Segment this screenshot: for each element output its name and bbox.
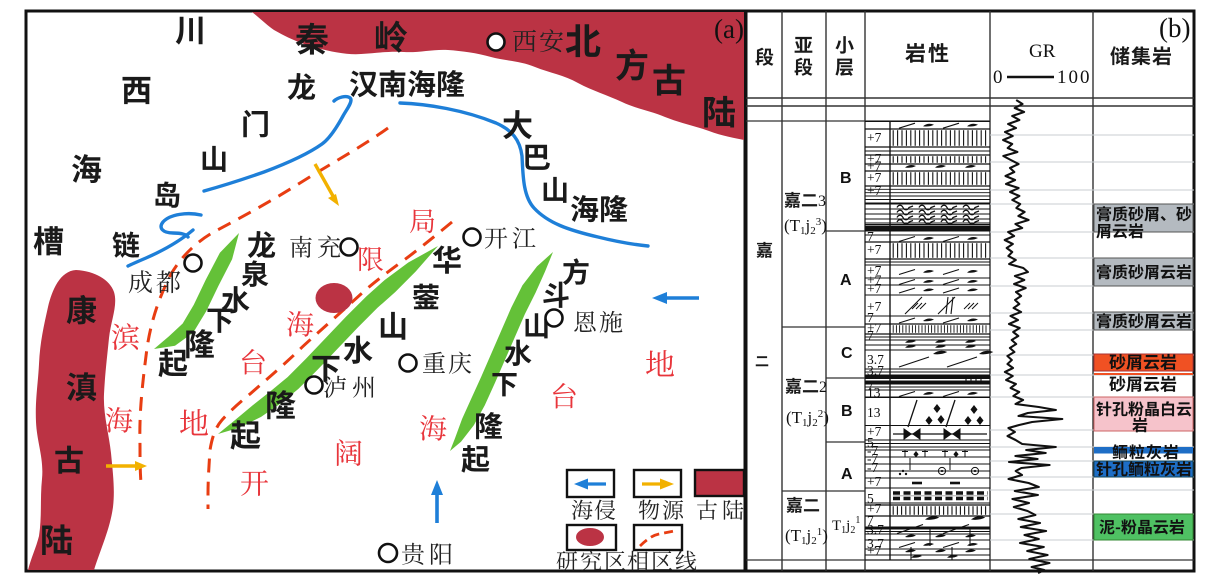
svg-text:3.7: 3.7 (867, 522, 884, 537)
svg-text:(a): (a) (714, 14, 744, 44)
svg-text:B: B (840, 170, 852, 187)
svg-text:13: 13 (867, 405, 881, 420)
svg-text:3: 3 (818, 193, 826, 210)
svg-text:(b): (b) (1159, 13, 1190, 43)
svg-text:(T1j22): (T1j22) (786, 408, 829, 429)
svg-text:2: 2 (819, 379, 827, 396)
svg-text:+7: +7 (867, 242, 882, 257)
svg-text:A: A (841, 466, 853, 483)
svg-text:(T1j23): (T1j23) (784, 216, 827, 237)
svg-text:7: 7 (867, 328, 874, 343)
svg-text:+7: +7 (867, 183, 882, 198)
svg-text:A: A (840, 272, 852, 289)
svg-text:100: 100 (1057, 67, 1092, 88)
svg-text:0: 0 (993, 67, 1003, 88)
svg-text:3.7: 3.7 (867, 363, 884, 378)
svg-text:B: B (841, 403, 853, 420)
svg-text:+7: +7 (867, 281, 882, 296)
svg-text:GR: GR (1029, 41, 1056, 62)
svg-text:+7: +7 (867, 474, 882, 489)
svg-text:-7: -7 (867, 460, 878, 475)
svg-text:C: C (841, 345, 853, 362)
svg-text:+7: +7 (867, 543, 882, 558)
svg-text:(T1j21): (T1j21) (785, 526, 828, 547)
svg-text:+7: +7 (867, 130, 882, 145)
svg-text:13: 13 (867, 385, 881, 400)
